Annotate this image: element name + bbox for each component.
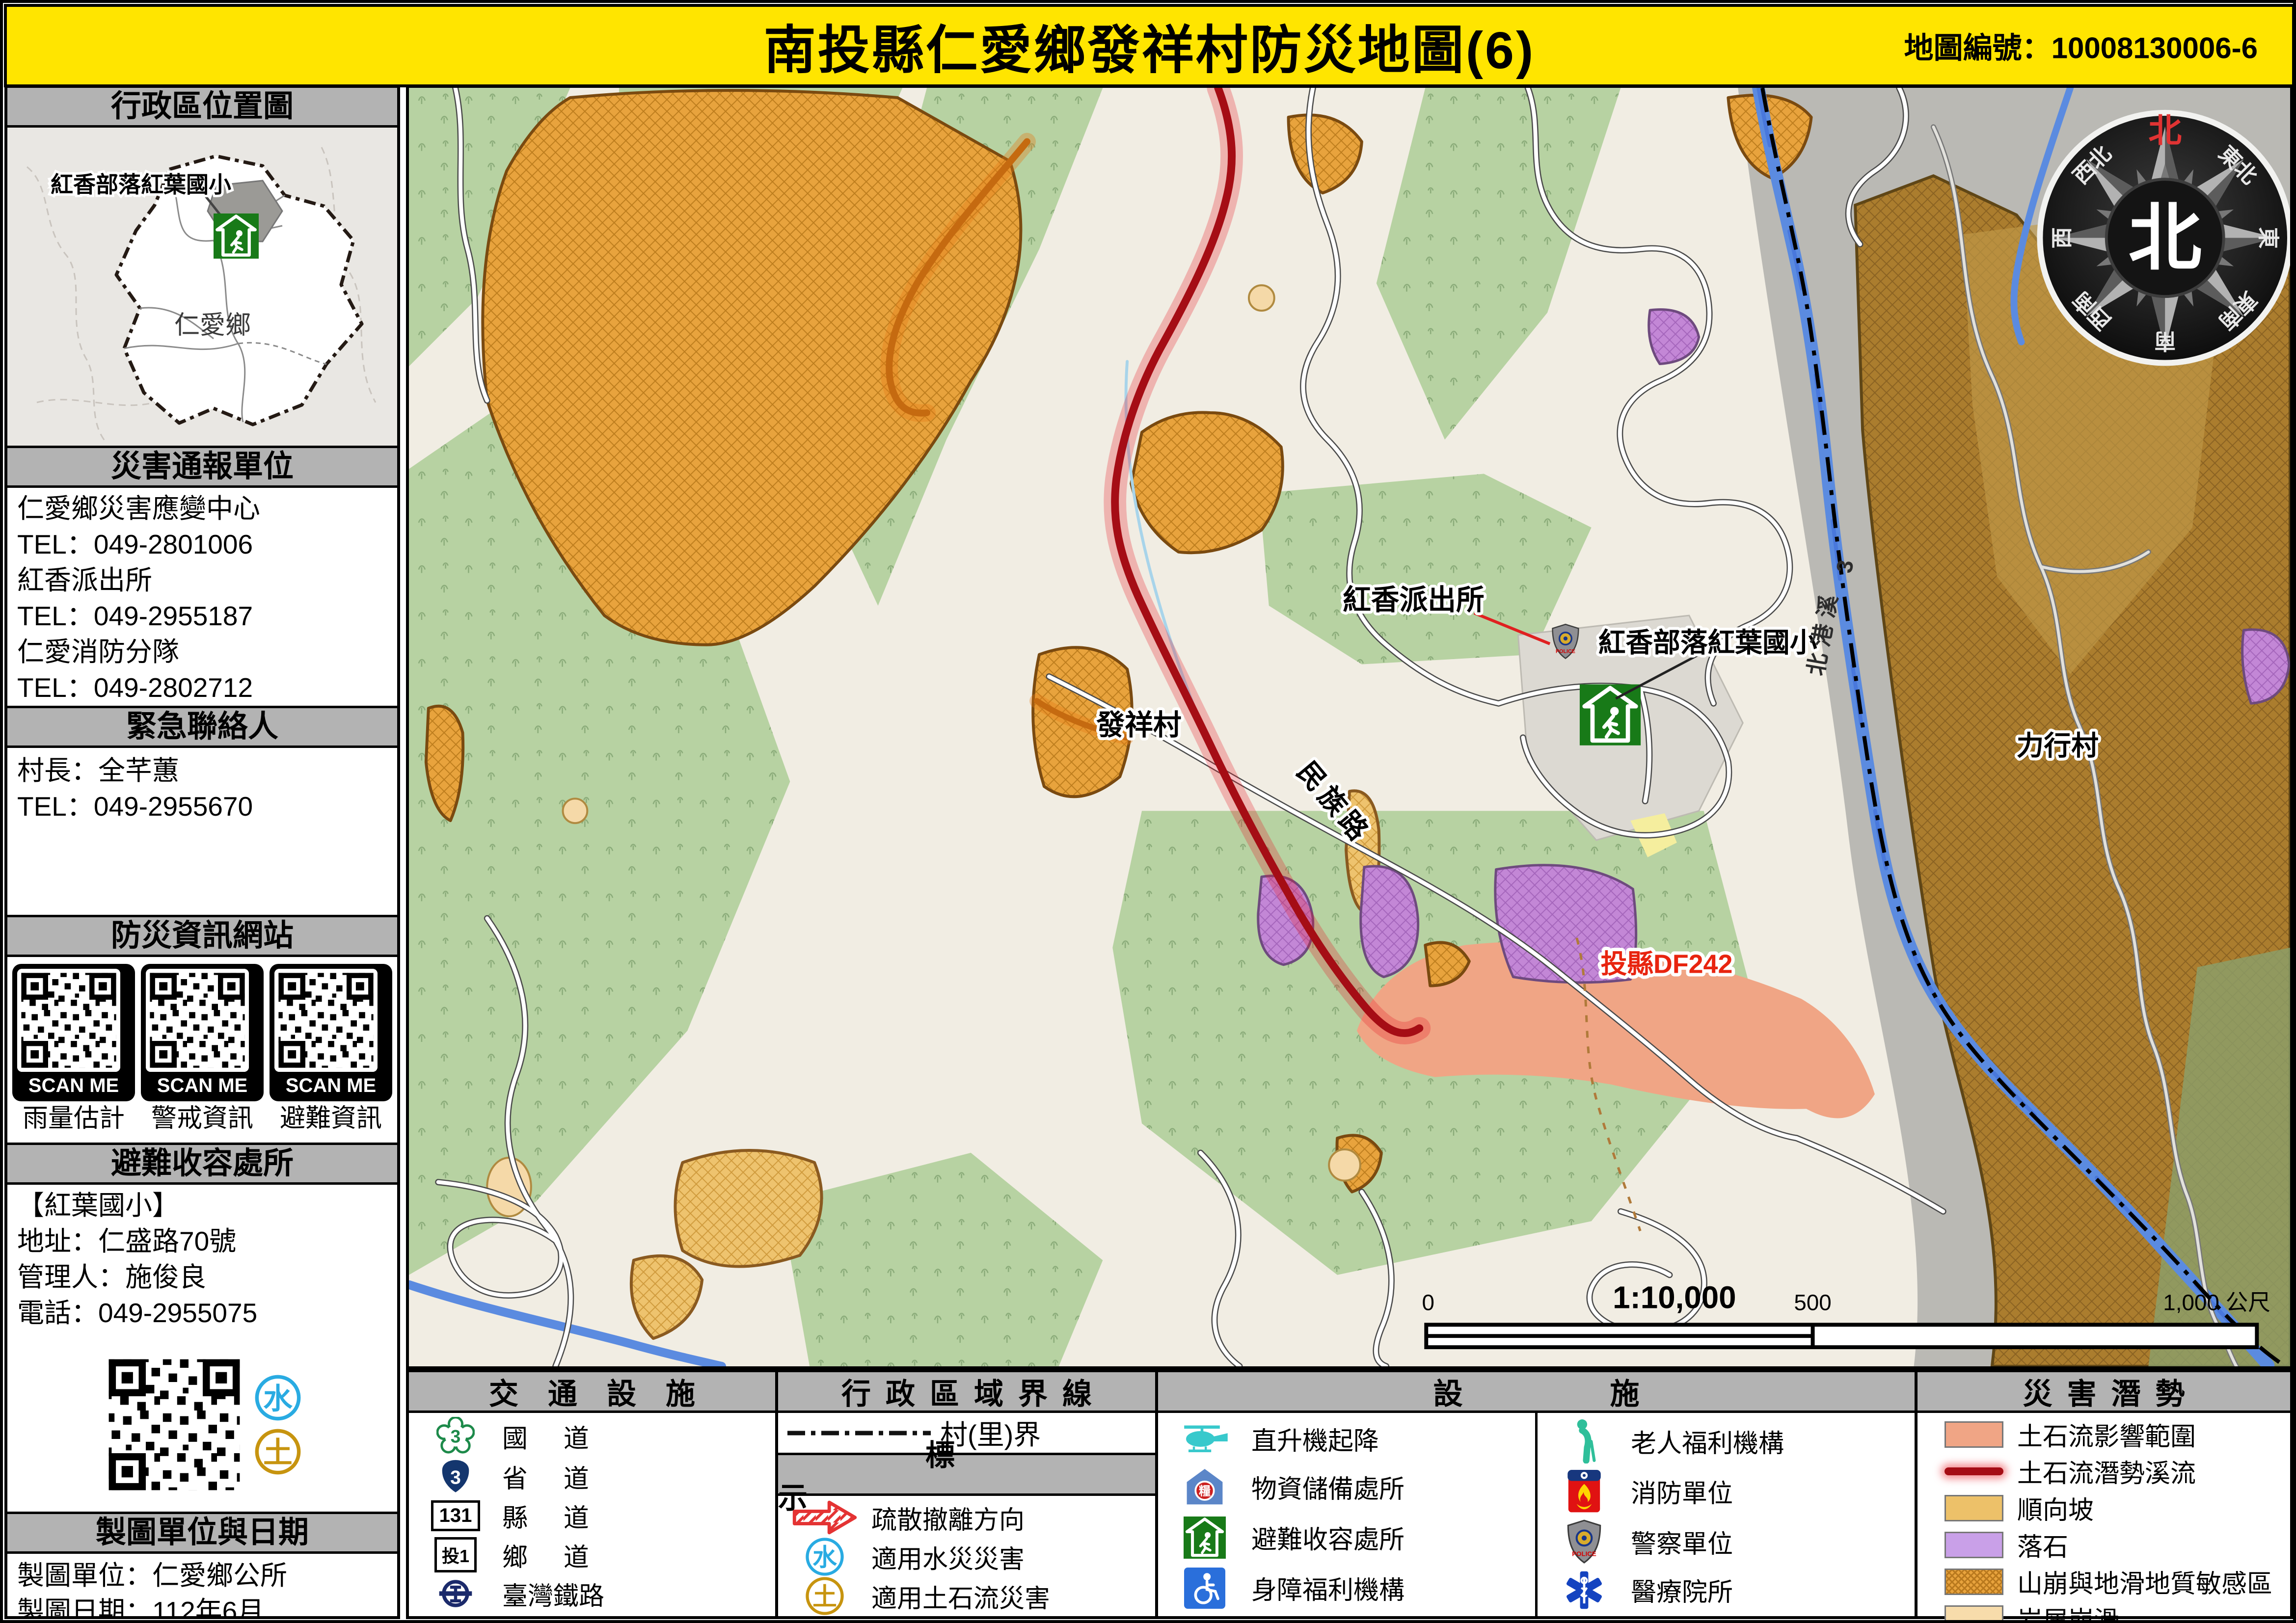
wheelchair-icon <box>1158 1568 1251 1609</box>
legend-item-debris-stream: 土石流潛勢溪流 <box>1945 1453 2290 1490</box>
helicopter-icon <box>1158 1423 1251 1455</box>
map-canvas: 紅香派出所 紅香部落紅葉國小 發祥村 民族路 力行村 投縣DF242 北港溪 3… <box>409 88 2290 1366</box>
legend-label: 老人福利機構 <box>1631 1423 1784 1460</box>
credit-header: 製圖單位與日期 <box>7 1512 397 1554</box>
credit-line: 製圖日期：112年6月 <box>7 1594 397 1616</box>
emergency-header: 緊急聯絡人 <box>7 706 397 748</box>
dip-slope-swatch <box>1945 1495 2003 1521</box>
qr-caption: 警戒資訊 <box>141 1101 264 1136</box>
scale-zero: 0 <box>1422 1290 1434 1315</box>
scale-ratio: 1:10,000 <box>1613 1280 1736 1315</box>
legend-item-medical-facility: 醫療院所 <box>1538 1570 1915 1611</box>
shelter-info: 【紅葉國小】 地址：仁盛路70號 管理人：施俊良 電話：049-2955075 <box>7 1185 397 1341</box>
report-line: TEL：049-2802712 <box>7 670 397 706</box>
legend-item-township-road: 投1 鄉道 <box>409 1537 775 1573</box>
qr-alert: SCAN ME 警戒資訊 <box>141 964 264 1136</box>
legend-label: 落石 <box>2017 1526 2068 1563</box>
credit-info: 製圖單位：仁愛鄉公所 製圖日期：112年6月 <box>7 1554 397 1616</box>
legend-label: 直升機起降 <box>1251 1420 1379 1457</box>
legend-item-debrisflow-applicable: 適用土石流災害 <box>778 1576 1155 1616</box>
compass-center-north: 北 <box>2129 197 2202 279</box>
debris-slide-swatch <box>1945 1605 2003 1623</box>
map-shelter-icon <box>1580 684 1641 745</box>
scale-end: 1,000 公尺 <box>2163 1290 2270 1315</box>
legend-label: 順向坡 <box>2017 1490 2094 1526</box>
map-number: 地圖編號：10008130006-6 <box>1904 25 2258 67</box>
scale-mid: 500 <box>1794 1290 1831 1315</box>
legend-label: 避難收容處所 <box>1251 1519 1405 1556</box>
legend-item-disabled-welfare: 身障福利機構 <box>1158 1568 1535 1609</box>
evacuation-arrow-icon <box>778 1498 871 1537</box>
supply-depot-icon <box>1158 1466 1251 1507</box>
water-disaster-icon <box>254 1374 301 1421</box>
legend-label: 警察單位 <box>1631 1523 1733 1560</box>
compass-east: 東 <box>2256 227 2280 249</box>
qr-section: SCAN ME 雨量估計 SCAN ME 警戒資訊 SCAN ME <box>7 957 397 1143</box>
township-road-badge-icon: 投1 <box>409 1537 502 1572</box>
scan-me-label: SCAN ME <box>17 1072 130 1099</box>
legend-transport: 交通設施 國道 省道 131 縣道 <box>409 1372 778 1616</box>
landslide-zone-swatch <box>1945 1569 2003 1595</box>
legend-label: 岩屑崩滑 <box>2017 1600 2119 1623</box>
legend-label: 鄉道 <box>502 1537 625 1573</box>
locator-shelter-icon <box>214 213 259 259</box>
fire-badge-icon <box>1538 1469 1631 1514</box>
water-circle-icon <box>778 1537 871 1576</box>
compass-west: 西 <box>2050 227 2074 249</box>
debris-impact-swatch <box>1945 1421 2003 1448</box>
legend-facilities-header: 設施 <box>1158 1372 1915 1413</box>
legend-item-elderly-welfare: 老人福利機構 <box>1538 1418 1915 1463</box>
legend-label: 山崩與地滑地質敏感區 <box>2017 1563 2272 1600</box>
qr-evacuation: SCAN ME 避難資訊 <box>270 964 392 1136</box>
legend-item-landslide-zone: 山崩與地滑地質敏感區 <box>1945 1563 2290 1600</box>
village-label: 發祥村 <box>1096 710 1181 741</box>
map-police-icon <box>1553 624 1579 658</box>
rockfall-swatch <box>1945 1532 2003 1558</box>
legend-label: 適用水災災害 <box>871 1539 1025 1575</box>
lixing-village-label: 力行村 <box>2017 731 2099 761</box>
debris-stream-id-label: 投縣DF242 <box>1601 950 1733 979</box>
emergency-line: TEL：049-2955670 <box>7 789 397 825</box>
legend-label: 消防單位 <box>1631 1473 1733 1510</box>
shelter-line: 管理人：施俊良 <box>7 1259 397 1295</box>
legend-transport-header: 交通設施 <box>409 1372 775 1413</box>
qr-caption: 避難資訊 <box>270 1101 392 1136</box>
emergency-line: 村長：全芊蕙 <box>7 753 397 789</box>
legend-facilities: 設施 直升機起降 物資儲備處所 <box>1158 1372 1918 1616</box>
legend-item-taiwan-railway: 臺灣鐵路 <box>409 1575 775 1612</box>
shelter-line: 【紅葉國小】 <box>7 1188 397 1224</box>
legend-label: 醫療院所 <box>1631 1571 1733 1608</box>
compass-south: 南 <box>2154 329 2176 353</box>
legend-item-police-unit: 警察單位 <box>1538 1519 1915 1564</box>
legend-item-helipad: 直升機起降 <box>1158 1420 1535 1457</box>
report-line: 仁愛消防分隊 <box>7 634 397 670</box>
map-area: 紅香派出所 紅香部落紅葉國小 發祥村 民族路 力行村 投縣DF242 北港溪 3… <box>406 85 2293 1369</box>
locator-header: 行政區位置圖 <box>7 88 397 128</box>
legend-item-rockfall: 落石 <box>1945 1526 2290 1563</box>
compass-rose: 北 北 東北 東 東南 南 西南 西 西北 <box>2037 110 2290 366</box>
qr-caption: 雨量估計 <box>12 1101 135 1136</box>
legend-label: 身障福利機構 <box>1251 1570 1405 1606</box>
report-line: TEL：049-2801006 <box>7 527 397 562</box>
police-badge-icon <box>1538 1519 1631 1564</box>
school-label: 紅香部落紅葉國小 <box>1598 628 1817 658</box>
legend-label: 國道 <box>502 1418 625 1455</box>
legend-label: 土石流影響範圍 <box>2017 1416 2196 1453</box>
legend-item-county-road: 131 縣道 <box>409 1497 775 1534</box>
shelter-line: 電話：049-2955075 <box>7 1295 397 1331</box>
qr-code-evacuation: SCAN ME <box>270 964 392 1101</box>
credit-line: 製圖單位：仁愛鄉公所 <box>7 1558 397 1594</box>
soil-circle-icon <box>778 1576 871 1616</box>
taiwan-railway-icon <box>409 1575 502 1612</box>
scan-me-label: SCAN ME <box>274 1072 387 1099</box>
shelter-header: 避難收容處所 <box>7 1143 397 1185</box>
soil-disaster-icon <box>254 1428 301 1475</box>
qr-code-alert: SCAN ME <box>141 964 264 1101</box>
qr-rainfall: SCAN ME 雨量估計 <box>12 964 135 1136</box>
report-line: TEL：049-2955187 <box>7 598 397 634</box>
page-title: 南投縣仁愛鄉發祥村防災地圖(6) <box>764 8 1536 83</box>
disaster-map-poster: 南投縣仁愛鄉發祥村防災地圖(6) 地圖編號：10008130006-6 行政區位… <box>0 0 2296 1623</box>
legend-marks-header: 標示 <box>778 1453 1155 1496</box>
legend-label: 土石流潛勢溪流 <box>2017 1453 2196 1490</box>
legend-item-national-highway: 國道 <box>409 1417 775 1455</box>
legend: 交通設施 國道 省道 131 縣道 <box>406 1369 2293 1619</box>
report-line: 仁愛鄉災害應變中心 <box>7 491 397 527</box>
legend-item-debris-impact: 土石流影響範圍 <box>1945 1416 2290 1453</box>
legend-label: 省道 <box>502 1458 625 1495</box>
shelter-icon <box>1158 1517 1251 1559</box>
legend-item-shelter: 避難收容處所 <box>1158 1517 1535 1559</box>
legend-item-provincial-highway: 省道 <box>409 1457 775 1495</box>
locator-map: 紅香部落紅葉國小 仁愛鄉 <box>7 128 397 446</box>
legend-hazards: 災害潛勢 土石流影響範圍 土石流潛勢溪流 順向坡 落石 <box>1918 1372 2290 1616</box>
legend-label: 適用土石流災害 <box>871 1578 1050 1615</box>
report-header: 災害通報單位 <box>7 446 397 488</box>
legend-hazard-header: 災害潛勢 <box>1918 1372 2290 1413</box>
legend-boundary-header: 行政區域界線 <box>778 1372 1155 1413</box>
compass-north: 北 <box>2148 113 2182 150</box>
qr-code-water-soil <box>103 1354 245 1496</box>
debris-stream-swatch <box>1945 1467 2003 1475</box>
sidebar: 行政區位置圖 紅香部落紅葉國小 仁愛鄉 <box>4 85 400 1619</box>
locator-township-label: 仁愛鄉 <box>174 311 251 340</box>
legend-label: 物資儲備處所 <box>1251 1468 1405 1505</box>
report-units: 仁愛鄉災害應變中心 TEL：049-2801006 紅香派出所 TEL：049-… <box>7 488 397 706</box>
websites-header: 防災資訊網站 <box>7 915 397 957</box>
report-line: 紅香派出所 <box>7 562 397 598</box>
legend-boundary-marks: 行政區域界線 村(里)界 標示 疏散撤離方向 <box>778 1372 1158 1616</box>
qr-code-rainfall: SCAN ME <box>12 964 135 1101</box>
elderly-person-icon <box>1538 1418 1631 1463</box>
provincial-highway-shield-icon <box>409 1457 502 1495</box>
legend-label: 臺灣鐵路 <box>502 1575 604 1612</box>
legend-item-evacuation-direction: 疏散撤離方向 <box>778 1498 1155 1537</box>
locator-school-label: 紅香部落紅葉國小 <box>51 172 231 197</box>
legend-label: 疏散撤離方向 <box>871 1499 1025 1536</box>
legend-item-debris-slide: 岩屑崩滑 <box>1945 1600 2290 1623</box>
legend-item-dip-slope: 順向坡 <box>1945 1490 2290 1526</box>
scan-me-label: SCAN ME <box>146 1072 259 1099</box>
legend-label: 縣道 <box>502 1497 625 1534</box>
title-bar: 南投縣仁愛鄉發祥村防災地圖(6) 地圖編號：10008130006-6 <box>4 4 2295 87</box>
star-of-life-icon <box>1538 1570 1631 1611</box>
emergency-contact: 村長：全芊蕙 TEL：049-2955670 <box>7 748 397 915</box>
legend-item-flood-applicable: 適用水災災害 <box>778 1537 1155 1576</box>
legend-item-fire-department: 消防單位 <box>1538 1469 1915 1514</box>
shelter-line: 地址：仁盛路70號 <box>7 1224 397 1259</box>
national-highway-shield-icon <box>409 1417 502 1455</box>
legend-item-supply-depot: 物資儲備處所 <box>1158 1466 1535 1507</box>
police-label: 紅香派出所 <box>1343 585 1485 616</box>
county-road-badge-icon: 131 <box>409 1500 502 1531</box>
water-soil-qr-section <box>7 1341 397 1512</box>
